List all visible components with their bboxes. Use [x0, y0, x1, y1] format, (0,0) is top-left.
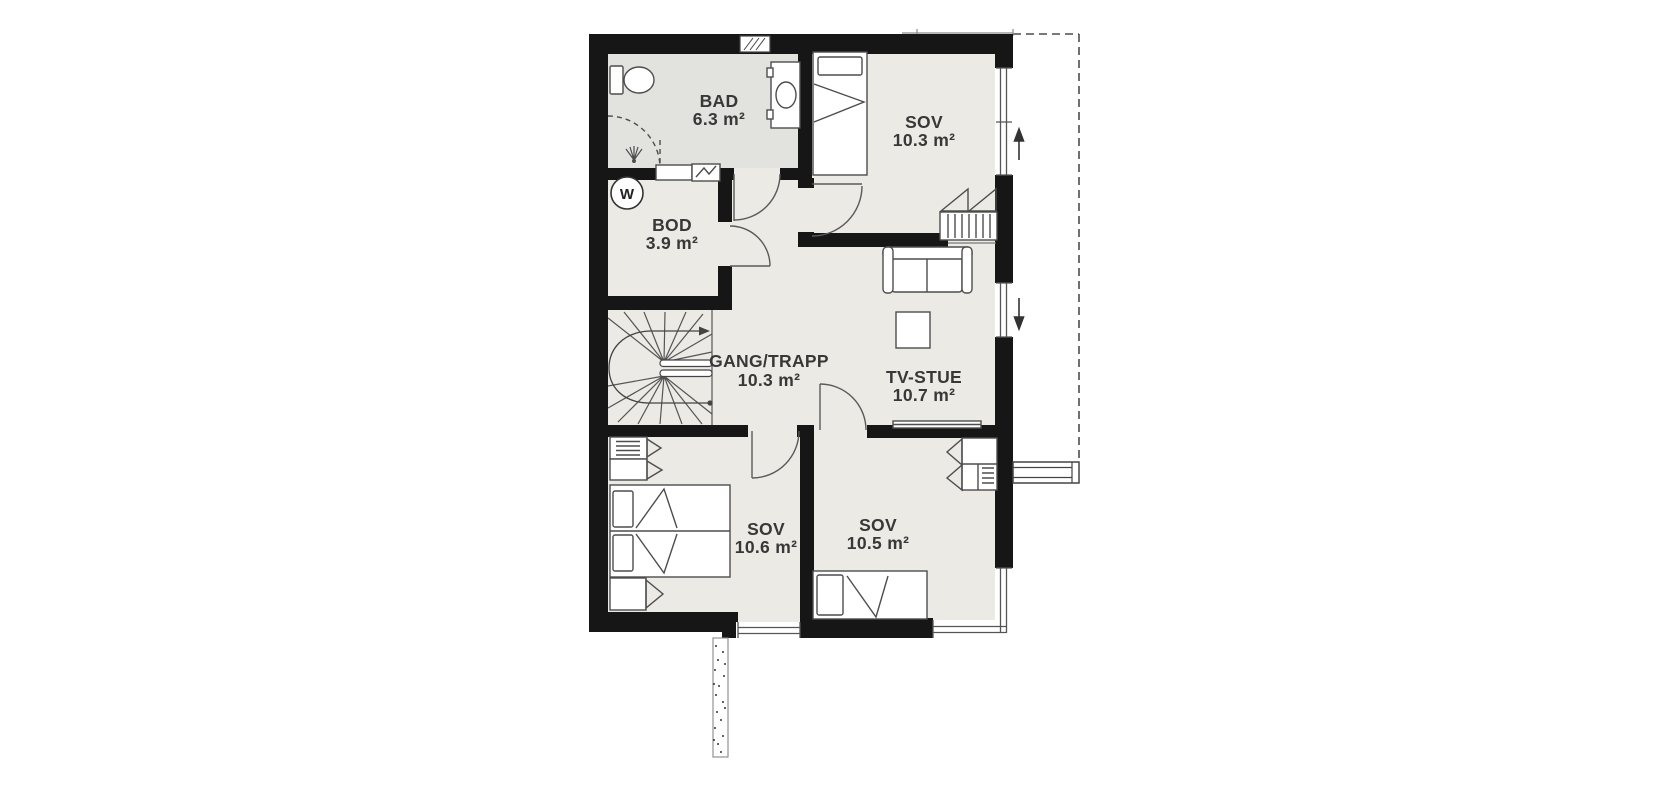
- water-heater-label: W: [620, 186, 635, 203]
- room-name-sov-bottom-right: SOV: [859, 515, 897, 535]
- wall-bad-bottom-c: [780, 168, 812, 180]
- party-wall-strip: [713, 638, 728, 757]
- arrow-down-icon: [1015, 298, 1024, 329]
- room-name-sov-top: SOV: [905, 112, 943, 132]
- room-label-bod: BOD 3.9 m²: [646, 215, 698, 253]
- room-area-sov-bottom-right: 10.5 m²: [847, 533, 909, 553]
- wall-top: [589, 34, 1013, 54]
- room-label-tv-stue: TV-STUE 10.7 m²: [886, 367, 962, 405]
- side-table: [896, 312, 930, 348]
- wall-right-seg1: [995, 50, 1013, 68]
- room-area-sov-bottom-left: 10.6 m²: [735, 537, 797, 557]
- washbasin-icon: [767, 62, 800, 128]
- toilet-icon: [610, 66, 654, 94]
- room-area-gang-trapp: 10.3 m²: [738, 370, 800, 390]
- room-label-bad: BAD 6.3 m²: [693, 91, 745, 129]
- room-name-gang-trapp: GANG/TRAPP: [709, 351, 829, 371]
- wall-gang-sov106-a: [608, 425, 748, 437]
- wall-bod-bottom: [608, 296, 732, 310]
- balcony-beam: [1013, 462, 1079, 483]
- water-heater-symbol: W: [611, 177, 643, 209]
- wall-bottom-left: [589, 612, 730, 632]
- room-name-tv-stue: TV-STUE: [886, 367, 962, 387]
- wall-cabinet: [656, 165, 692, 180]
- floor-plan-canvas: W: [0, 0, 1670, 800]
- wall-bod-right-upper: [718, 180, 732, 222]
- wall-right-seg2: [995, 175, 1013, 283]
- room-area-bad: 6.3 m²: [693, 109, 745, 129]
- wall-right-seg3: [995, 337, 1013, 568]
- electrical-cabinet: [692, 164, 720, 181]
- vent-top-wall: [740, 36, 770, 52]
- room-name-bad: BAD: [700, 91, 739, 111]
- roof-outline-dashed: [1013, 34, 1079, 462]
- window-arrows: [1015, 129, 1024, 329]
- bed-sov-bottom-right: [813, 571, 927, 619]
- room-area-bod: 3.9 m²: [646, 233, 698, 253]
- sofa: [883, 247, 972, 293]
- bed-double-sov-bottom-left: [610, 485, 730, 577]
- wall-bottom-right: [800, 618, 933, 638]
- tv-bench: [893, 421, 981, 428]
- wall-bad-bottom-b: [720, 168, 734, 180]
- wall-bottom-jog: [722, 612, 738, 638]
- room-name-sov-bottom-left: SOV: [747, 519, 785, 539]
- arrow-up-icon: [1015, 129, 1024, 160]
- room-name-bod: BOD: [652, 215, 692, 235]
- wall-bedrooms-divider: [800, 425, 814, 632]
- floor-plan-drawing: W: [0, 0, 1670, 800]
- room-area-tv-stue: 10.7 m²: [893, 385, 955, 405]
- room-area-sov-top: 10.3 m²: [893, 130, 955, 150]
- wall-left: [589, 34, 608, 632]
- bed-sov-top: [813, 52, 867, 175]
